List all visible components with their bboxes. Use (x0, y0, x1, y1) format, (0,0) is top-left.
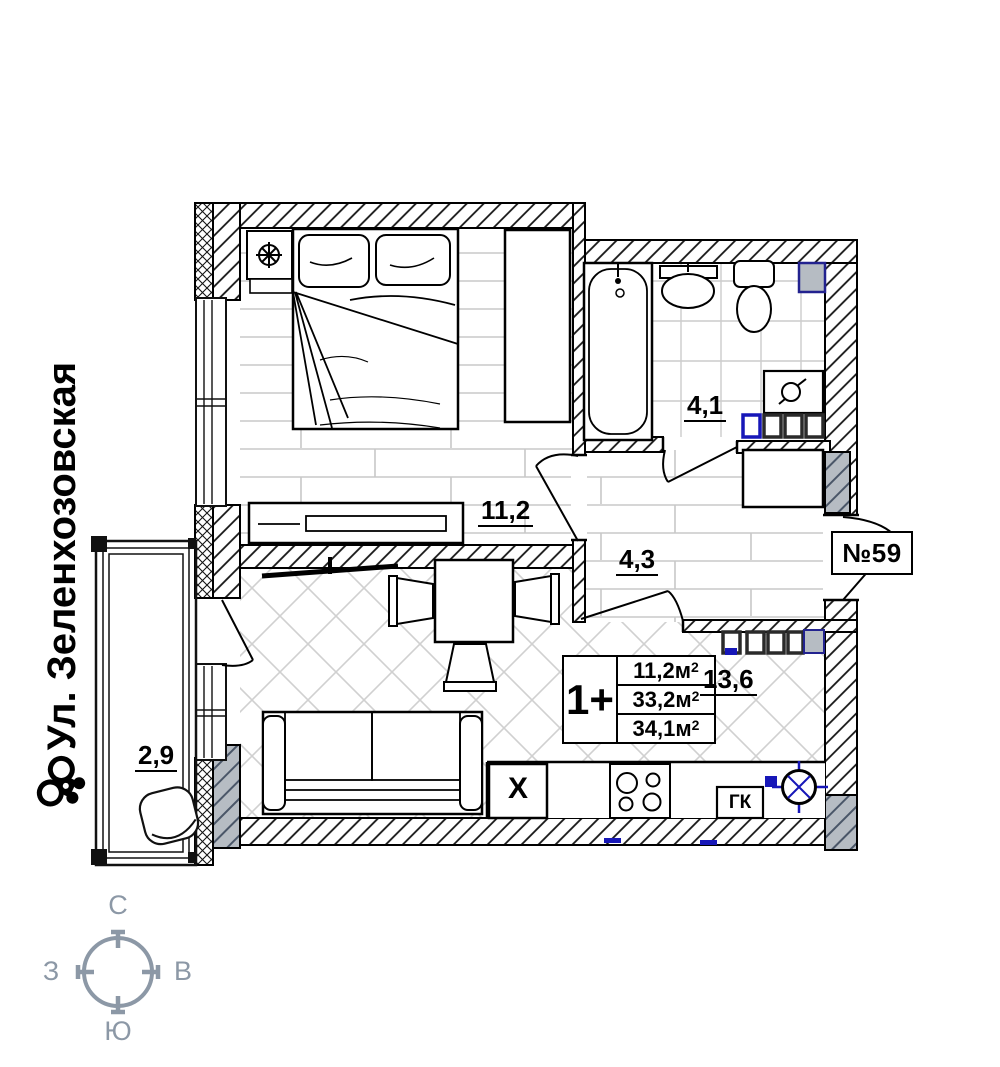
compass-south-label: Ю (98, 1016, 138, 1047)
floor-plan-page: Ул. Зеленхозовская 11,2 4,1 4,3 13,6 2,9… (0, 0, 1000, 1067)
bedroom-window (196, 298, 226, 506)
wall-bathroom-top (585, 240, 857, 263)
toilet (734, 261, 774, 332)
kitchen-living-area-label: 13,6 (700, 666, 757, 696)
fridge-label: Х (489, 772, 547, 806)
compass-rose (76, 930, 160, 1014)
wall-bedroom-top (195, 203, 585, 228)
sofa-armrest (460, 716, 482, 810)
wall-bedroom-hall-stub (573, 540, 585, 622)
sofa (263, 712, 482, 814)
apartment-type: 1+ (564, 657, 618, 742)
gas-boiler-label: ГК (717, 792, 763, 814)
pillow (299, 235, 369, 287)
total-area-row: 34,1м2 (618, 715, 714, 742)
hallway-area-label: 4,3 (616, 546, 658, 576)
nightstand (247, 231, 292, 293)
bedroom-wardrobe (505, 230, 570, 422)
stove (610, 764, 670, 818)
bathroom-sink (660, 262, 717, 308)
wall-bedroom-bottom (240, 545, 573, 568)
chair-left (389, 576, 433, 626)
balcony-window (196, 664, 226, 760)
balcony-corner-top (91, 536, 107, 552)
wall-left-top (213, 203, 240, 300)
dresser (249, 503, 463, 543)
washing-machine (764, 371, 823, 413)
bedroom-area-label: 11,2 (478, 497, 533, 527)
street-name-label: Ул. Зеленхозовская (40, 356, 88, 756)
gray-block-bottom-right (825, 795, 857, 850)
wall-left-mid-cross (195, 505, 213, 598)
balcony-area-label: 2,9 (135, 742, 177, 772)
wall-bottom (195, 818, 857, 845)
compass-east-label: В (163, 956, 203, 987)
bed (293, 229, 458, 429)
wall-left-top-cross (195, 203, 213, 300)
gray-block-entrance (825, 452, 850, 513)
chair-bottom (444, 644, 496, 691)
sofa-armrest (263, 716, 285, 810)
compass-west-label: З (31, 956, 71, 987)
dining-table (435, 560, 513, 642)
apartment-number-badge: №59 (831, 531, 913, 575)
binoculars-icon (36, 755, 92, 815)
wall-hall-kitchen (683, 620, 857, 632)
pillow (376, 235, 450, 285)
wall-left-mid (213, 505, 240, 598)
wall-left-bottom-cross (195, 758, 213, 865)
compass-north-label: С (98, 890, 138, 921)
bathroom-area-label: 4,1 (684, 392, 726, 422)
bathtub (584, 263, 652, 440)
balcony-corner-bottom (91, 849, 107, 865)
vent-blocks-kitchen (723, 630, 824, 655)
apartment-stats-box: 1+ 11,2м2 33,2м2 34,1м2 (562, 655, 716, 744)
vent-shaft (799, 263, 825, 292)
chair-right (515, 574, 559, 624)
hallway-closet (743, 450, 823, 507)
